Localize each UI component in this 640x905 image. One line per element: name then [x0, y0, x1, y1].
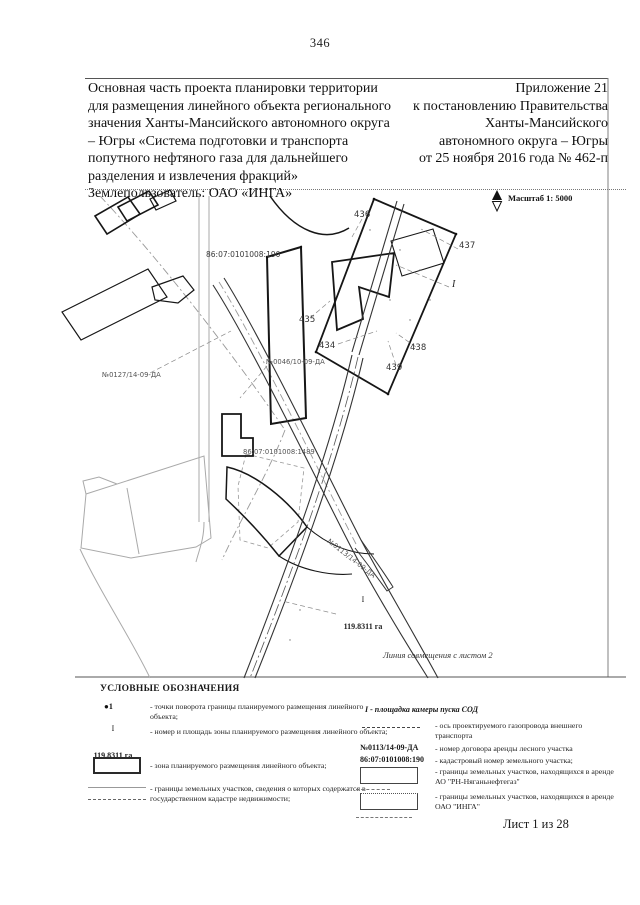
legend-inga-rect-symbol — [360, 793, 418, 810]
legend-zone-number-label: - номер и площадь зоны планируемого разм… — [150, 727, 400, 737]
sheet-match-line-label: Линия совмещения с листом 2 — [383, 650, 493, 660]
dashed-parcel-1489 — [238, 454, 304, 548]
turn-point-symbol: ●1 — [104, 702, 113, 711]
turn-point-439: 439 — [386, 364, 402, 373]
legend-title: УСЛОВНЫЕ ОБОЗНАЧЕНИЯ — [100, 684, 240, 694]
legend-rn-rect-symbol — [360, 767, 418, 784]
label-leader-lines — [150, 219, 458, 614]
north-arrow-icon — [492, 190, 502, 211]
legend-cadastre-dash-line-symbol — [88, 799, 146, 800]
document-page: 346 Основная часть проекта планировки те… — [0, 0, 640, 905]
legend-cadastre-solid-line-symbol — [88, 787, 146, 788]
planned-zone-parcels — [62, 190, 456, 574]
legend-pipeline-axis-label: - ось проектируемого газопровода внешнег… — [435, 721, 600, 740]
legend-rn-label: - границы земельных участков, находящихс… — [435, 767, 625, 786]
legend-turn-points-label: - точки поворота границы планируемого ра… — [150, 702, 380, 721]
turn-point-436: 436 — [354, 211, 370, 220]
legend-cadastral-number-symbol: 86:07:0101008:190 — [360, 755, 424, 764]
legend-cadastre-label: - границы земельных участков, сведения о… — [150, 784, 390, 803]
zone-area-fraction: I 119.8311 га — [338, 595, 388, 631]
turn-point-435: 435 — [299, 316, 315, 325]
pipeline-corridors — [213, 201, 438, 678]
turn-point-434: 434 — [319, 342, 335, 351]
map-scale-label: Масштаб 1: 5000 — [508, 193, 572, 203]
legend-lease-number-symbol: №0113/14-09-ДА — [360, 743, 418, 752]
cadastral-number-1489: 86:07:0101008:1489 — [243, 449, 315, 456]
legend-sod-heading: I - площадка камеры пуска СОД — [365, 705, 478, 714]
lease-number-0046: №0046/10-09-ДА — [266, 359, 325, 366]
turn-point-437: 437 — [459, 242, 475, 251]
legend-rn-rect-dash — [356, 789, 390, 790]
legend-cadastral-number-label: - кадастровый номер земельного участка; — [435, 756, 620, 766]
legend-lease-number-label: - номер договора аренды лесного участка — [435, 744, 620, 754]
turn-point-438: 438 — [410, 344, 426, 353]
cadastre-boundaries-gray — [80, 196, 211, 678]
zone-fraction-area: 119.8311 га — [338, 622, 388, 631]
legend-zone-rect-symbol — [93, 757, 141, 774]
legend-inga-label: - границы земельных участков, находящихс… — [435, 792, 625, 811]
cadastral-number-190: 86:07:0101008:190 — [206, 251, 280, 259]
sheet-number: Лист 1 из 28 — [503, 817, 569, 832]
legend-inga-rect-dash — [356, 817, 412, 818]
legend-fraction-number: I — [90, 724, 136, 733]
legend-fraction-symbol: I 119.8311 га — [90, 724, 136, 760]
legend-pipeline-axis-symbol — [362, 727, 420, 728]
zone-fraction-number: I — [338, 595, 388, 604]
lease-number-0127: №0127/14-09-ДА — [102, 372, 161, 379]
zone-number-label: I — [452, 280, 455, 290]
